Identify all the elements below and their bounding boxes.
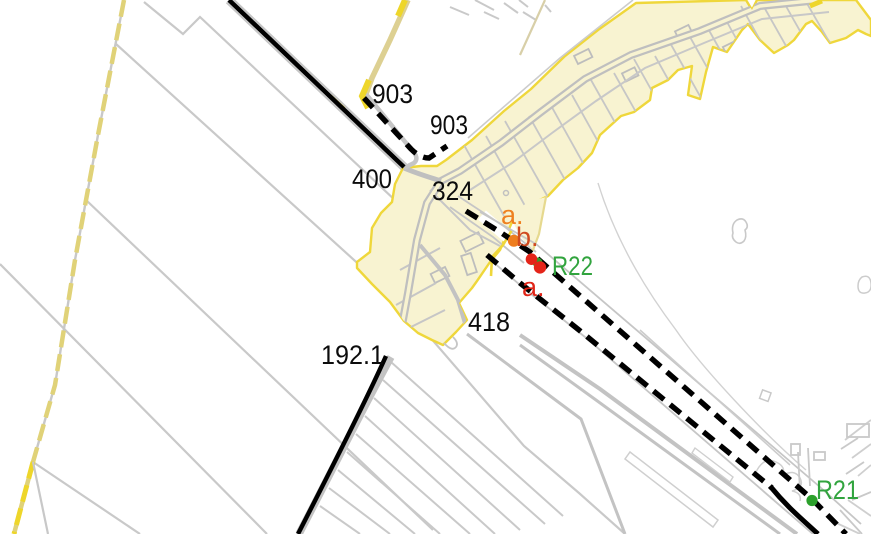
svg-text:a.: a. (522, 272, 545, 302)
svg-text:R22: R22 (552, 251, 593, 281)
svg-text:b.: b. (516, 222, 539, 252)
svg-text:400: 400 (352, 164, 392, 194)
svg-text:903: 903 (430, 110, 468, 140)
svg-text:R21: R21 (816, 475, 859, 505)
svg-text:324: 324 (432, 176, 473, 206)
svg-text:903: 903 (372, 79, 413, 109)
svg-text:418: 418 (468, 307, 510, 337)
svg-text:192.1: 192.1 (321, 340, 384, 370)
